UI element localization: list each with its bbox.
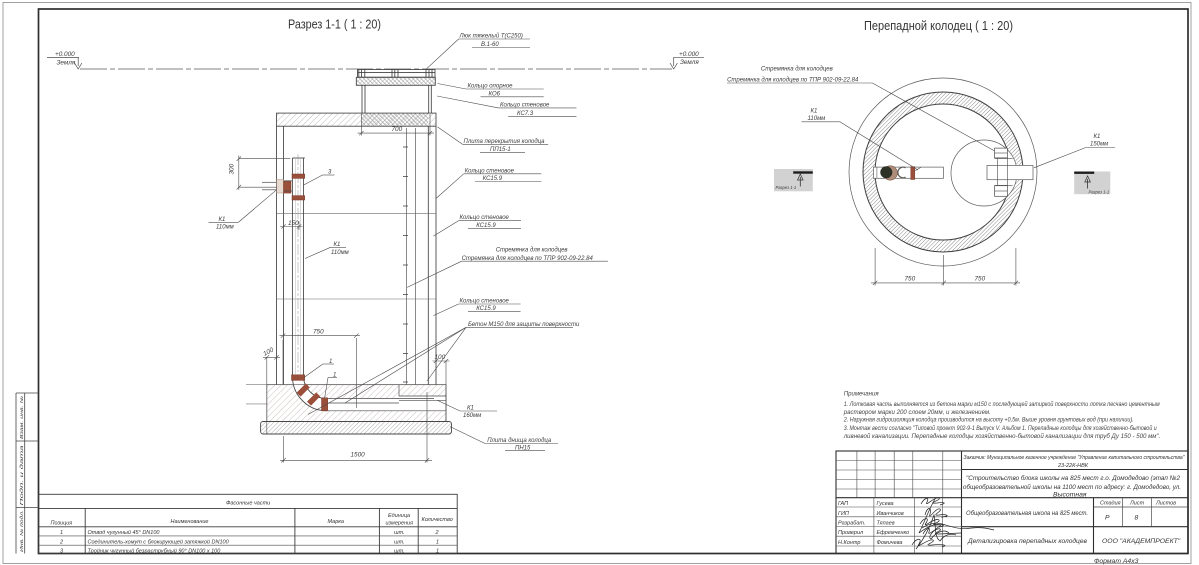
svg-text:Подп. и дата: Подп. и дата [19, 444, 24, 506]
svg-text:Соединитель-хомут с блокирующе: Соединитель-хомут с блокирующей затяжкой… [88, 539, 230, 546]
svg-text:В.1-60: В.1-60 [481, 42, 499, 48]
svg-text:2. Наружная гидроизоляция коло: 2. Наружная гидроизоляция колодца произв… [843, 416, 1134, 423]
svg-text:2: 2 [59, 540, 63, 546]
svg-text:К1: К1 [1094, 134, 1101, 140]
svg-text:Кольцо стеновое: Кольцо стеновое [500, 103, 550, 109]
svg-text:К1: К1 [219, 217, 226, 223]
svg-text:160мм: 160мм [463, 413, 481, 419]
svg-text:Листов: Листов [1155, 501, 1176, 507]
svg-text:Фомичева: Фомичева [877, 540, 903, 546]
svg-text:измерения: измерения [386, 521, 414, 527]
svg-text:шт.: шт. [394, 540, 405, 546]
svg-text:К1: К1 [334, 242, 341, 248]
svg-text:К1: К1 [467, 406, 474, 412]
svg-text:Иванчиков: Иванчиков [877, 511, 904, 517]
svg-text:Перепадной колодец ( 1 : 20): Перепадной колодец ( 1 : 20) [864, 18, 1013, 33]
svg-text:Кольцо стеновое: Кольцо стеновое [465, 168, 515, 174]
svg-text:Высотная: Высотная [1053, 492, 1087, 499]
svg-text:Люк тяжелый Т(С250): Люк тяжелый Т(С250) [459, 33, 523, 40]
svg-text:Земля: Земля [57, 60, 76, 67]
svg-text:Примечания: Примечания [844, 391, 880, 398]
svg-text:Бетон М150 для защиты поверхно: Бетон М150 для защиты поверхности [468, 322, 580, 328]
svg-text:Стремянка для колодцев по ТПР: Стремянка для колодцев по ТПР 902-09-22.… [462, 256, 594, 262]
svg-text:Стремянка для колодцев: Стремянка для колодцев [761, 67, 833, 73]
svg-text:Инв. № подл.: Инв. № подл. [19, 510, 24, 552]
svg-text:150: 150 [288, 220, 299, 227]
svg-text:1. Лотковая часть выполняется: 1. Лотковая часть выполняется из бетона … [844, 401, 1161, 408]
svg-text:Стремянка для колодцев: Стремянка для колодцев [496, 248, 568, 254]
svg-text:Разрабат.: Разрабат. [838, 521, 865, 527]
svg-text:3. Монтаж вести согласно "Типо: 3. Монтаж вести согласно "Типовой проект… [844, 425, 1158, 432]
svg-text:Гусева: Гусева [877, 501, 894, 507]
svg-text:1: 1 [436, 549, 439, 555]
svg-text:"Строительство блока школы на: "Строительство блока школы на 825 мест г… [966, 474, 1180, 482]
svg-text:Плита перекрытия колодца: Плита перекрытия колодца [464, 139, 546, 145]
svg-text:Общеобразовательная школа на 8: Общеобразовательная школа на 825 мест. [966, 509, 1088, 517]
svg-text:К1: К1 [811, 108, 818, 114]
svg-text:ГАП: ГАП [838, 501, 848, 507]
svg-text:Взам. инв. №: Взам. инв. № [19, 395, 24, 439]
svg-text:ООО "АКАДЕМПРОЕКТ": ООО "АКАДЕМПРОЕКТ" [1102, 538, 1181, 545]
svg-text:Позиция: Позиция [51, 521, 73, 527]
svg-text:750: 750 [905, 276, 916, 283]
svg-text:Н.Контр: Н.Контр [838, 540, 860, 546]
svg-text:Количество: Количество [422, 517, 453, 523]
svg-text:шт.: шт. [394, 549, 405, 555]
svg-text:Разрез 1-1 ( 1 : 20): Разрез 1-1 ( 1 : 20) [288, 17, 381, 32]
svg-text:Разрез 1-1: Разрез 1-1 [1089, 190, 1110, 195]
svg-text:+0.000: +0.000 [55, 51, 75, 58]
svg-text:8: 8 [1135, 515, 1139, 522]
svg-text:шт.: шт. [394, 530, 405, 536]
svg-text:Фасонные части: Фасонные части [226, 501, 270, 507]
svg-text:+0.000: +0.000 [679, 51, 699, 58]
svg-text:Тройник чугунный безраструбный: Тройник чугунный безраструбный 90° DN100… [88, 548, 222, 555]
svg-text:КС15.9: КС15.9 [476, 223, 496, 229]
svg-text:КС15.9: КС15.9 [483, 176, 503, 182]
svg-text:1: 1 [60, 530, 63, 536]
svg-text:1: 1 [329, 359, 332, 365]
svg-text:ПП15-1: ПП15-1 [490, 147, 511, 153]
svg-text:Ефремченко: Ефремченко [877, 530, 910, 536]
svg-text:Стремянка для колодцев по ТПР: Стремянка для колодцев по ТПР 902-09-22.… [727, 78, 859, 84]
svg-text:Детализировка перепадных колод: Детализировка перепадных колодцев [967, 537, 1087, 545]
svg-text:Плита днища колодца: Плита днища колодца [487, 438, 552, 444]
svg-text:Формат А4х3: Формат А4х3 [1094, 558, 1139, 565]
svg-text:Стадия: Стадия [1100, 501, 1121, 507]
svg-text:110мм: 110мм [331, 250, 349, 256]
svg-text:Наименование: Наименование [171, 519, 209, 525]
svg-text:1: 1 [333, 372, 336, 378]
svg-text:Единица: Единица [388, 513, 410, 519]
svg-text:110мм: 110мм [808, 116, 826, 122]
svg-text:750: 750 [975, 276, 986, 283]
svg-text:Кольцо стеновое: Кольцо стеновое [460, 215, 510, 221]
svg-text:300: 300 [229, 163, 236, 174]
svg-text:700: 700 [392, 126, 403, 133]
svg-text:Разрез 1-1: Разрез 1-1 [776, 185, 797, 190]
svg-text:Отвод чугунный 45° DN100: Отвод чугунный 45° DN100 [88, 529, 161, 536]
svg-text:Проверил: Проверил [838, 530, 863, 536]
svg-text:23-22К-НВК: 23-22К-НВК [1057, 463, 1089, 469]
svg-text:КС15.9: КС15.9 [476, 306, 496, 312]
svg-text:Лист: Лист [1129, 501, 1145, 507]
svg-text:ливневой канализации. Перепадн: ливневой канализации. Перепадные колодцы… [843, 433, 1161, 440]
svg-text:Заказчик: Муниципальное казенн: Заказчик: Муниципальное казенное учрежде… [964, 455, 1186, 461]
svg-text:1500: 1500 [351, 452, 366, 459]
svg-text:раствором марки 200 слоем 20мм: раствором марки 200 слоем 20мм, и железн… [843, 409, 991, 416]
svg-text:Кольцо опорное: Кольцо опорное [468, 84, 514, 90]
svg-text:ГИП: ГИП [838, 511, 849, 517]
svg-text:Марка: Марка [328, 519, 344, 525]
svg-text:КС7.3: КС7.3 [517, 111, 534, 117]
svg-text:Тяпаев: Тяпаев [877, 521, 895, 527]
svg-text:1: 1 [436, 540, 439, 546]
svg-text:КО6: КО6 [489, 91, 501, 97]
svg-text:Кольцо стеновое: Кольцо стеновое [460, 299, 510, 305]
svg-text:750: 750 [313, 329, 324, 336]
svg-text:Р: Р [1105, 515, 1110, 522]
svg-text:2: 2 [435, 530, 439, 536]
svg-text:ПН15: ПН15 [515, 445, 531, 451]
svg-text:150мм: 150мм [1090, 142, 1108, 148]
svg-text:общеобразовательной школы на 1: общеобразовательной школы на 1100 мест п… [963, 483, 1181, 491]
svg-text:Земля: Земля [680, 59, 699, 66]
svg-text:110мм: 110мм [216, 225, 234, 231]
